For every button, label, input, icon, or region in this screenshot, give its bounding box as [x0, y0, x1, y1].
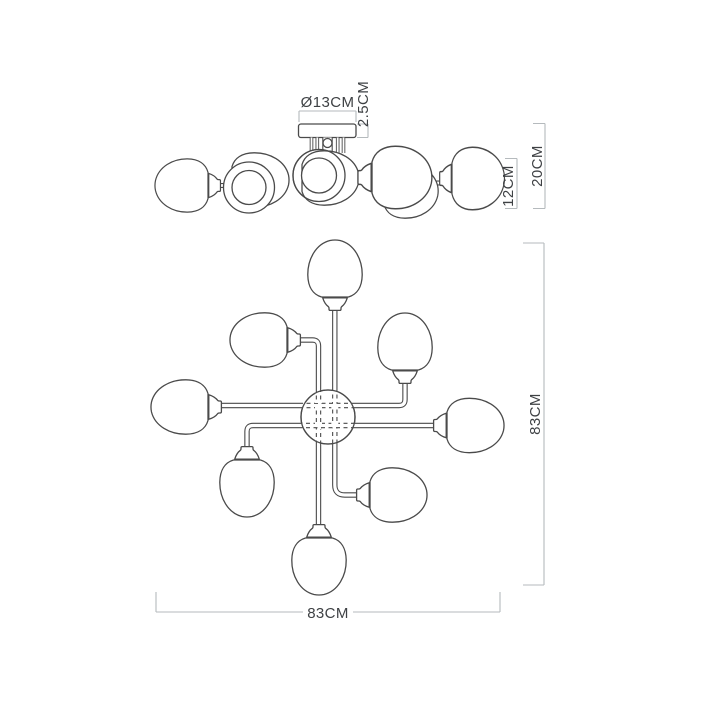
dimension-label-canopy-height: 2.5CM [355, 81, 372, 127]
plan-shade-left [151, 380, 221, 434]
ring-shade-left [224, 162, 275, 213]
plan-view: 83CM 83CM [151, 240, 544, 622]
dimension-label-plan-width: 83CM [307, 605, 349, 622]
plan-shade-lower-left [220, 447, 274, 517]
dimension-label-fixture-height: 20CM [529, 145, 546, 187]
side-shade-far-left [155, 159, 220, 212]
plan-shade-top [308, 240, 362, 310]
dim-fixture-height: 20CM [529, 124, 546, 209]
dimension-label-canopy-diameter: Ø13CM [301, 94, 355, 111]
side-view: Ø13CM 2.5CM 12CM 20CM [155, 81, 546, 218]
technical-drawing-page: Ø13CM 2.5CM 12CM 20CM [0, 0, 715, 715]
dimension-label-shade-height: 12CM [500, 165, 517, 207]
dim-plan-width: 83CM [156, 592, 500, 622]
dim-shade-height: 12CM [500, 159, 517, 209]
plan-shade-upper-left [230, 313, 300, 367]
dimension-label-plan-depth: 83CM [527, 393, 544, 435]
dim-canopy-diameter: Ø13CM [299, 94, 356, 122]
chandelier-dimension-drawing: Ø13CM 2.5CM 12CM 20CM [0, 0, 715, 715]
plan-shade-right [434, 398, 504, 452]
plan-shade-upper-right [378, 313, 432, 383]
plan-shade-lower-right [357, 468, 427, 522]
dim-canopy-height: 2.5CM [355, 81, 372, 138]
plan-shade-bottom [292, 525, 346, 595]
side-shade-right [358, 146, 432, 209]
canopy-ball-joint [323, 139, 332, 148]
dim-plan-depth: 83CM [523, 243, 544, 585]
ceiling-canopy-plate [299, 124, 357, 138]
side-shade-far-right [440, 147, 505, 210]
